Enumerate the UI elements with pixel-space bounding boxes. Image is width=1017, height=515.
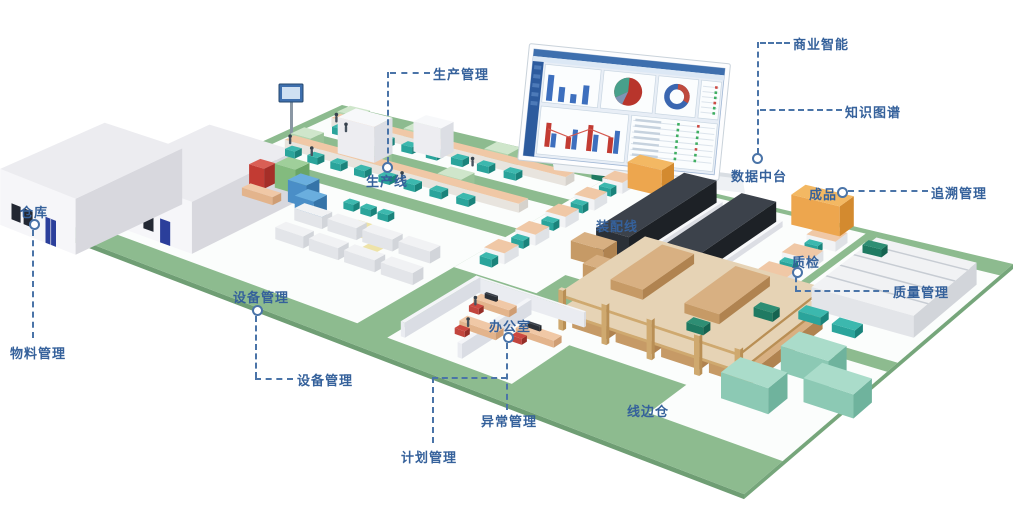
worker-figure	[467, 320, 469, 327]
worker-figure	[289, 138, 291, 145]
smart-factory-diagram: 生产管理 生产线 商业智能 知识图谱 数据中台 成品 追溯管理 仓库 物料管理 …	[0, 0, 1017, 515]
status-dot	[695, 148, 698, 151]
rack-post	[694, 334, 699, 376]
status-dot	[694, 154, 697, 157]
status-dot	[713, 102, 716, 105]
status-dot	[697, 125, 700, 128]
status-dot	[674, 152, 677, 155]
kiosk-pole	[290, 102, 293, 134]
worker-figure	[310, 146, 314, 150]
cubicle-wall	[458, 342, 462, 359]
worker-figure	[466, 317, 470, 321]
worker-figure	[401, 174, 403, 181]
rack-post	[606, 303, 609, 345]
status-dot	[676, 129, 679, 132]
status-dot	[714, 91, 717, 94]
status-dot	[675, 146, 678, 149]
worker-figure	[400, 171, 404, 175]
sidebar-item	[532, 83, 539, 88]
sidebar-item	[530, 101, 537, 106]
rack-post	[602, 304, 607, 346]
building-door-split	[50, 219, 51, 245]
status-dot	[673, 157, 676, 160]
cubicle-wall	[584, 311, 586, 327]
status-dot	[677, 123, 680, 126]
factory-scene	[0, 0, 1017, 515]
status-dot	[714, 96, 717, 99]
building-door	[160, 218, 170, 246]
status-dot	[713, 107, 716, 110]
sidebar-item	[533, 74, 540, 79]
status-dot	[676, 134, 679, 137]
worker-figure	[474, 299, 476, 306]
cubicle-wall	[401, 321, 405, 338]
rack-post	[647, 319, 652, 361]
worker-figure	[288, 134, 292, 138]
worker-figure	[335, 113, 339, 117]
worker-figure	[471, 160, 473, 167]
rack-post	[652, 318, 655, 360]
worker-figure	[311, 150, 313, 157]
bar	[570, 94, 577, 104]
status-dot	[693, 159, 696, 162]
worker-figure	[345, 126, 347, 132]
dashboard-panel	[655, 76, 699, 118]
dashboard-monitor	[518, 44, 731, 181]
status-dot	[696, 136, 699, 139]
status-dot	[675, 140, 678, 143]
status-dot	[712, 112, 715, 115]
sidebar-item	[531, 92, 538, 97]
dashboard-panel	[698, 80, 722, 120]
worker-figure	[474, 296, 478, 300]
worker-figure	[335, 116, 337, 123]
worker-figure	[344, 122, 348, 126]
status-dot	[696, 131, 699, 134]
kiosk-screen-content	[282, 87, 300, 99]
status-dot	[715, 86, 718, 89]
status-dot	[695, 142, 698, 145]
worker-figure	[471, 157, 475, 161]
sidebar-item	[534, 65, 541, 70]
rack-post	[699, 334, 702, 376]
